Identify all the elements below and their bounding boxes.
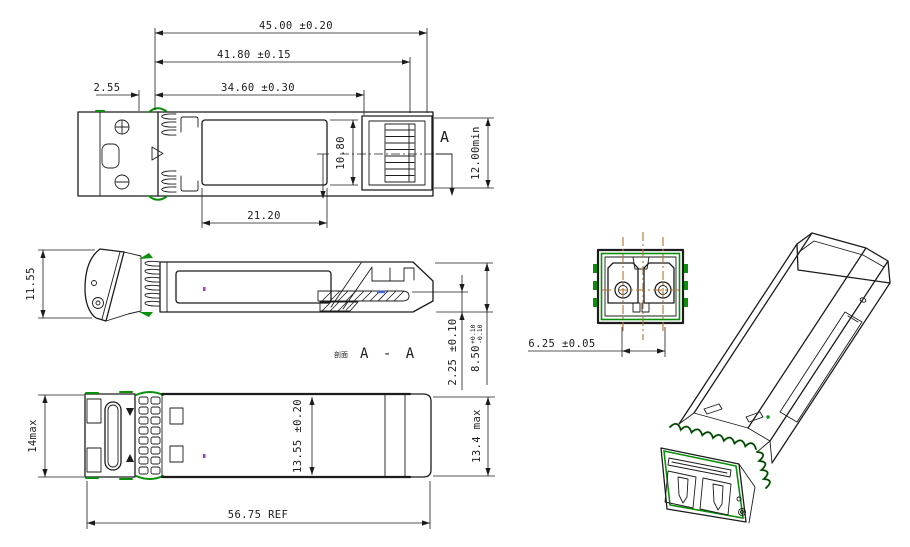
mounting-hole [170,446,183,462]
dim-overall-length: 45.00 ±0.20 [259,20,333,32]
label-recess-side [176,271,331,303]
drawing-canvas: A 45.00 ±0.20 41.80 ±0.15 34.60 ±0.30 2.… [0,0,910,547]
sfp-outline-drawing: A 45.00 ±0.20 41.80 ±0.15 34.60 ±0.30 2.… [0,0,910,547]
emi-fingers-side [139,253,160,317]
front-view-geometry [593,232,688,340]
hook-bracket [181,117,198,132]
front-view-dimensions: 6.25 ±0.05 [528,327,665,357]
dim-latch-height: 11.55 [25,267,37,301]
top-view-geometry: A [78,108,455,200]
emi-fingers-top [96,108,176,200]
label-recess-top [202,120,327,185]
key-notch [633,257,649,269]
dim-nose-tol-minus: -0.10 [476,324,484,344]
iso-rear-cap [797,233,890,283]
connector-cage [362,116,432,190]
dim-label-width: 10.80 [335,136,347,170]
dim-port-pitch: 6.25 ±0.05 [528,338,595,350]
mounting-hole [170,408,183,424]
dim-label-length: 21.20 [247,210,281,222]
triangle-marker-icon [126,454,134,462]
screw-phillips-icon [115,120,129,134]
slider-slot [105,402,121,470]
bottom-view-geometry [85,392,431,479]
section-title: A - A [360,346,417,362]
dim-height-min: 12.00min [470,126,482,180]
section-arrow-label: A [440,128,449,146]
bottom-rear-cap [405,394,431,477]
iso-label-recess [780,312,862,422]
iso-front-block [661,441,770,523]
side-view-geometry [85,249,433,321]
dim-pcb-offset: 2.25 ±0.10 [447,318,459,385]
bottom-view-dimensions: 14max 13.55 ±0.20 13.4 max 56.75 REF [27,395,495,529]
dim-body-length: 34.60 ±0.30 [221,82,295,94]
bottom-body-edges [162,394,410,477]
emi-fingers-bottom [86,392,163,479]
mark-purple [203,454,206,458]
triangle-marker-icon [126,408,134,416]
latch-pivot-hole [93,298,104,309]
top-view-dimensions: 45.00 ±0.20 41.80 ±0.15 34.60 ±0.30 2.55… [94,20,494,228]
hook-bracket [181,176,198,191]
dim-front-offset: 2.55 [94,82,121,94]
side-body [160,262,433,312]
iso-lc-cavity-right [700,478,731,515]
mark-green-dot [766,415,769,418]
side-view: 11.55 2.25 ±0.10 8.50 +0.10 -0.10 剖面 A -… [25,249,493,390]
dim-body-width: 13.55 ±0.20 [292,399,304,473]
isometric-view [661,233,890,523]
dim-latch-length: 41.80 ±0.15 [217,49,291,61]
dim-height-max: 14max [27,419,39,453]
dim-nose-height-group: 8.50 +0.10 -0.10 [469,324,484,372]
lc-port-right [644,263,674,303]
section-title-prefix: 剖面 [334,350,348,359]
dim-overall-ref: 56.75 REF [228,509,289,521]
top-bezel [78,112,158,196]
mark-purple [203,287,206,291]
top-view: A 45.00 ±0.20 41.80 ±0.15 34.60 ±0.30 2.… [78,20,494,228]
iso-body-edges [679,233,890,463]
top-bezel-notch [102,144,119,168]
bottom-view: 14max 13.55 ±0.20 13.4 max 56.75 REF [27,392,495,529]
dim-nose-height: 8.50 [470,345,482,372]
latch-pin-hole [92,281,97,286]
dim-width-max: 13.4 max [471,409,483,463]
front-view: 6.25 ±0.05 [528,232,688,357]
screw-slotted-icon [115,175,129,189]
